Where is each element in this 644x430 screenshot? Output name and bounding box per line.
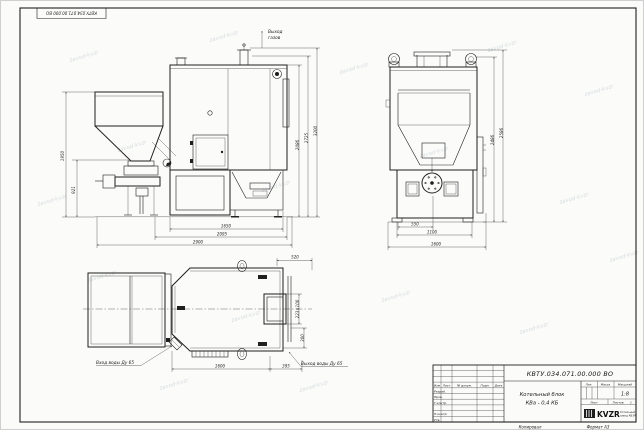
- gas-outlet-label-2: газов: [268, 36, 281, 41]
- dim-front-body-width: 1100: [427, 230, 438, 235]
- lit-label: Лит.: [585, 383, 593, 387]
- dim-front-total-width: 1600: [431, 242, 442, 247]
- brand-sub-line2: завод КВЗР: [620, 414, 636, 418]
- dim-front-inner-width: 550: [411, 222, 419, 227]
- watermark-text: zavod-kvzr: [608, 250, 640, 264]
- col-list: Лист: [442, 384, 451, 388]
- water-inlet-label: Вход воды Ду 65: [96, 360, 134, 366]
- dim-front-body-height: 2486: [490, 134, 495, 145]
- gas-outlet-label-1: Выход: [268, 29, 283, 35]
- drawing-sheet: zavod-kvzr zavod-kvzr zavod-kvzr zavod-k…: [0, 0, 644, 430]
- watermark-text: zavod-kvzr: [68, 50, 100, 64]
- brand-sub-line1: Котельный: [620, 410, 635, 414]
- watermarks: zavod-kvzr zavod-kvzr zavod-kvzr zavod-k…: [36, 30, 640, 394]
- watermark-text: zavod-kvzr: [86, 270, 118, 284]
- dim-side-total-width: 2900: [193, 240, 204, 245]
- dim-side-body-height: 2086: [295, 139, 300, 150]
- sheet-frame: [20, 8, 636, 422]
- brand-logo-icon: [584, 409, 595, 418]
- footer-format: Формат А3: [587, 425, 610, 430]
- row-razrab: Разраб.: [434, 389, 446, 393]
- watermark-text: zavod-kvzr: [116, 140, 148, 154]
- dim-side-feeder-height: 921: [71, 186, 76, 194]
- dim-plan-outlet-size: 223×100: [295, 299, 300, 318]
- stamp-top-left: КВТУ.034.071.00.000 ВО: [37, 8, 106, 19]
- brand-name: KVZR: [597, 410, 620, 419]
- dim-side-mid-height: 2725: [304, 132, 309, 143]
- dim-side-total-height: 3200: [313, 125, 318, 136]
- plan-view: 520 223×100 300 1600 395 Вход воды Ду 65…: [83, 255, 348, 373]
- watermark-text: zavod-kvzr: [158, 378, 190, 392]
- watermark-text: zavod-kvzr: [558, 192, 590, 206]
- title-block: Изм Лист № докум. Подп. Дата Разраб. Про…: [433, 365, 636, 430]
- dim-side-base-width: 1650: [221, 224, 232, 229]
- row-utv: Утв.: [434, 418, 440, 422]
- watermark-text: zavod-kvzr: [230, 310, 262, 324]
- watermark-text: zavod-kvzr: [583, 84, 615, 98]
- watermark-text: zavod-kvzr: [208, 30, 240, 44]
- col-izm: Изм: [434, 384, 441, 388]
- col-doc: № докум.: [456, 384, 472, 388]
- dim-plan-outlet-offset: 520: [291, 255, 299, 260]
- footer-copied: Копировал: [519, 425, 542, 430]
- dim-plan-rear-offset: 300: [300, 334, 305, 342]
- stamp-doc-number: КВТУ.034.071.00.000 ВО: [46, 11, 97, 16]
- watermark-text: zavod-kvzr: [518, 322, 550, 336]
- row-prov: Пров.: [434, 395, 443, 399]
- sheet-label: Лист: [589, 400, 598, 404]
- watermark-text: zavod-kvzr: [36, 194, 68, 208]
- title-name-line2: КВа - 0,4 КБ: [526, 401, 559, 407]
- side-view: Выход газов: [60, 29, 320, 248]
- row-tkontr: Т.контр.: [434, 401, 447, 405]
- col-date: Дата: [494, 384, 503, 388]
- watermark-text: zavod-kvzr: [380, 290, 412, 304]
- watermark-text: zavod-kvzr: [486, 40, 518, 54]
- scale-value: 1:8: [621, 392, 629, 398]
- row-nkontr: Н.контр.: [434, 412, 447, 416]
- dim-plan-rear-length: 395: [282, 364, 290, 369]
- watermark-text: zavod-kvzr: [338, 62, 370, 76]
- dim-side-hopper-height: 1950: [60, 150, 65, 161]
- mass-label: Масса: [601, 383, 611, 387]
- dim-front-total-height: 2586: [499, 127, 504, 138]
- sheets-label: Листов: [611, 400, 623, 404]
- title-doc-number: КВТУ.034.071.00.000 ВО: [527, 371, 613, 378]
- sheets-value: 1: [630, 400, 632, 404]
- title-name-line1: Котельный блок: [520, 392, 566, 398]
- scale-label: Масштаб: [618, 383, 632, 387]
- col-sign: Подп.: [480, 384, 489, 388]
- water-outlet-label: Выход воды Ду 65: [301, 361, 343, 367]
- watermark-text: zavod-kvzr: [298, 380, 330, 394]
- dim-plan-body-length: 1600: [215, 364, 226, 369]
- dim-side-mid-width: 2095: [217, 232, 228, 237]
- blueprint-canvas: zavod-kvzr zavod-kvzr zavod-kvzr zavod-k…: [0, 0, 644, 430]
